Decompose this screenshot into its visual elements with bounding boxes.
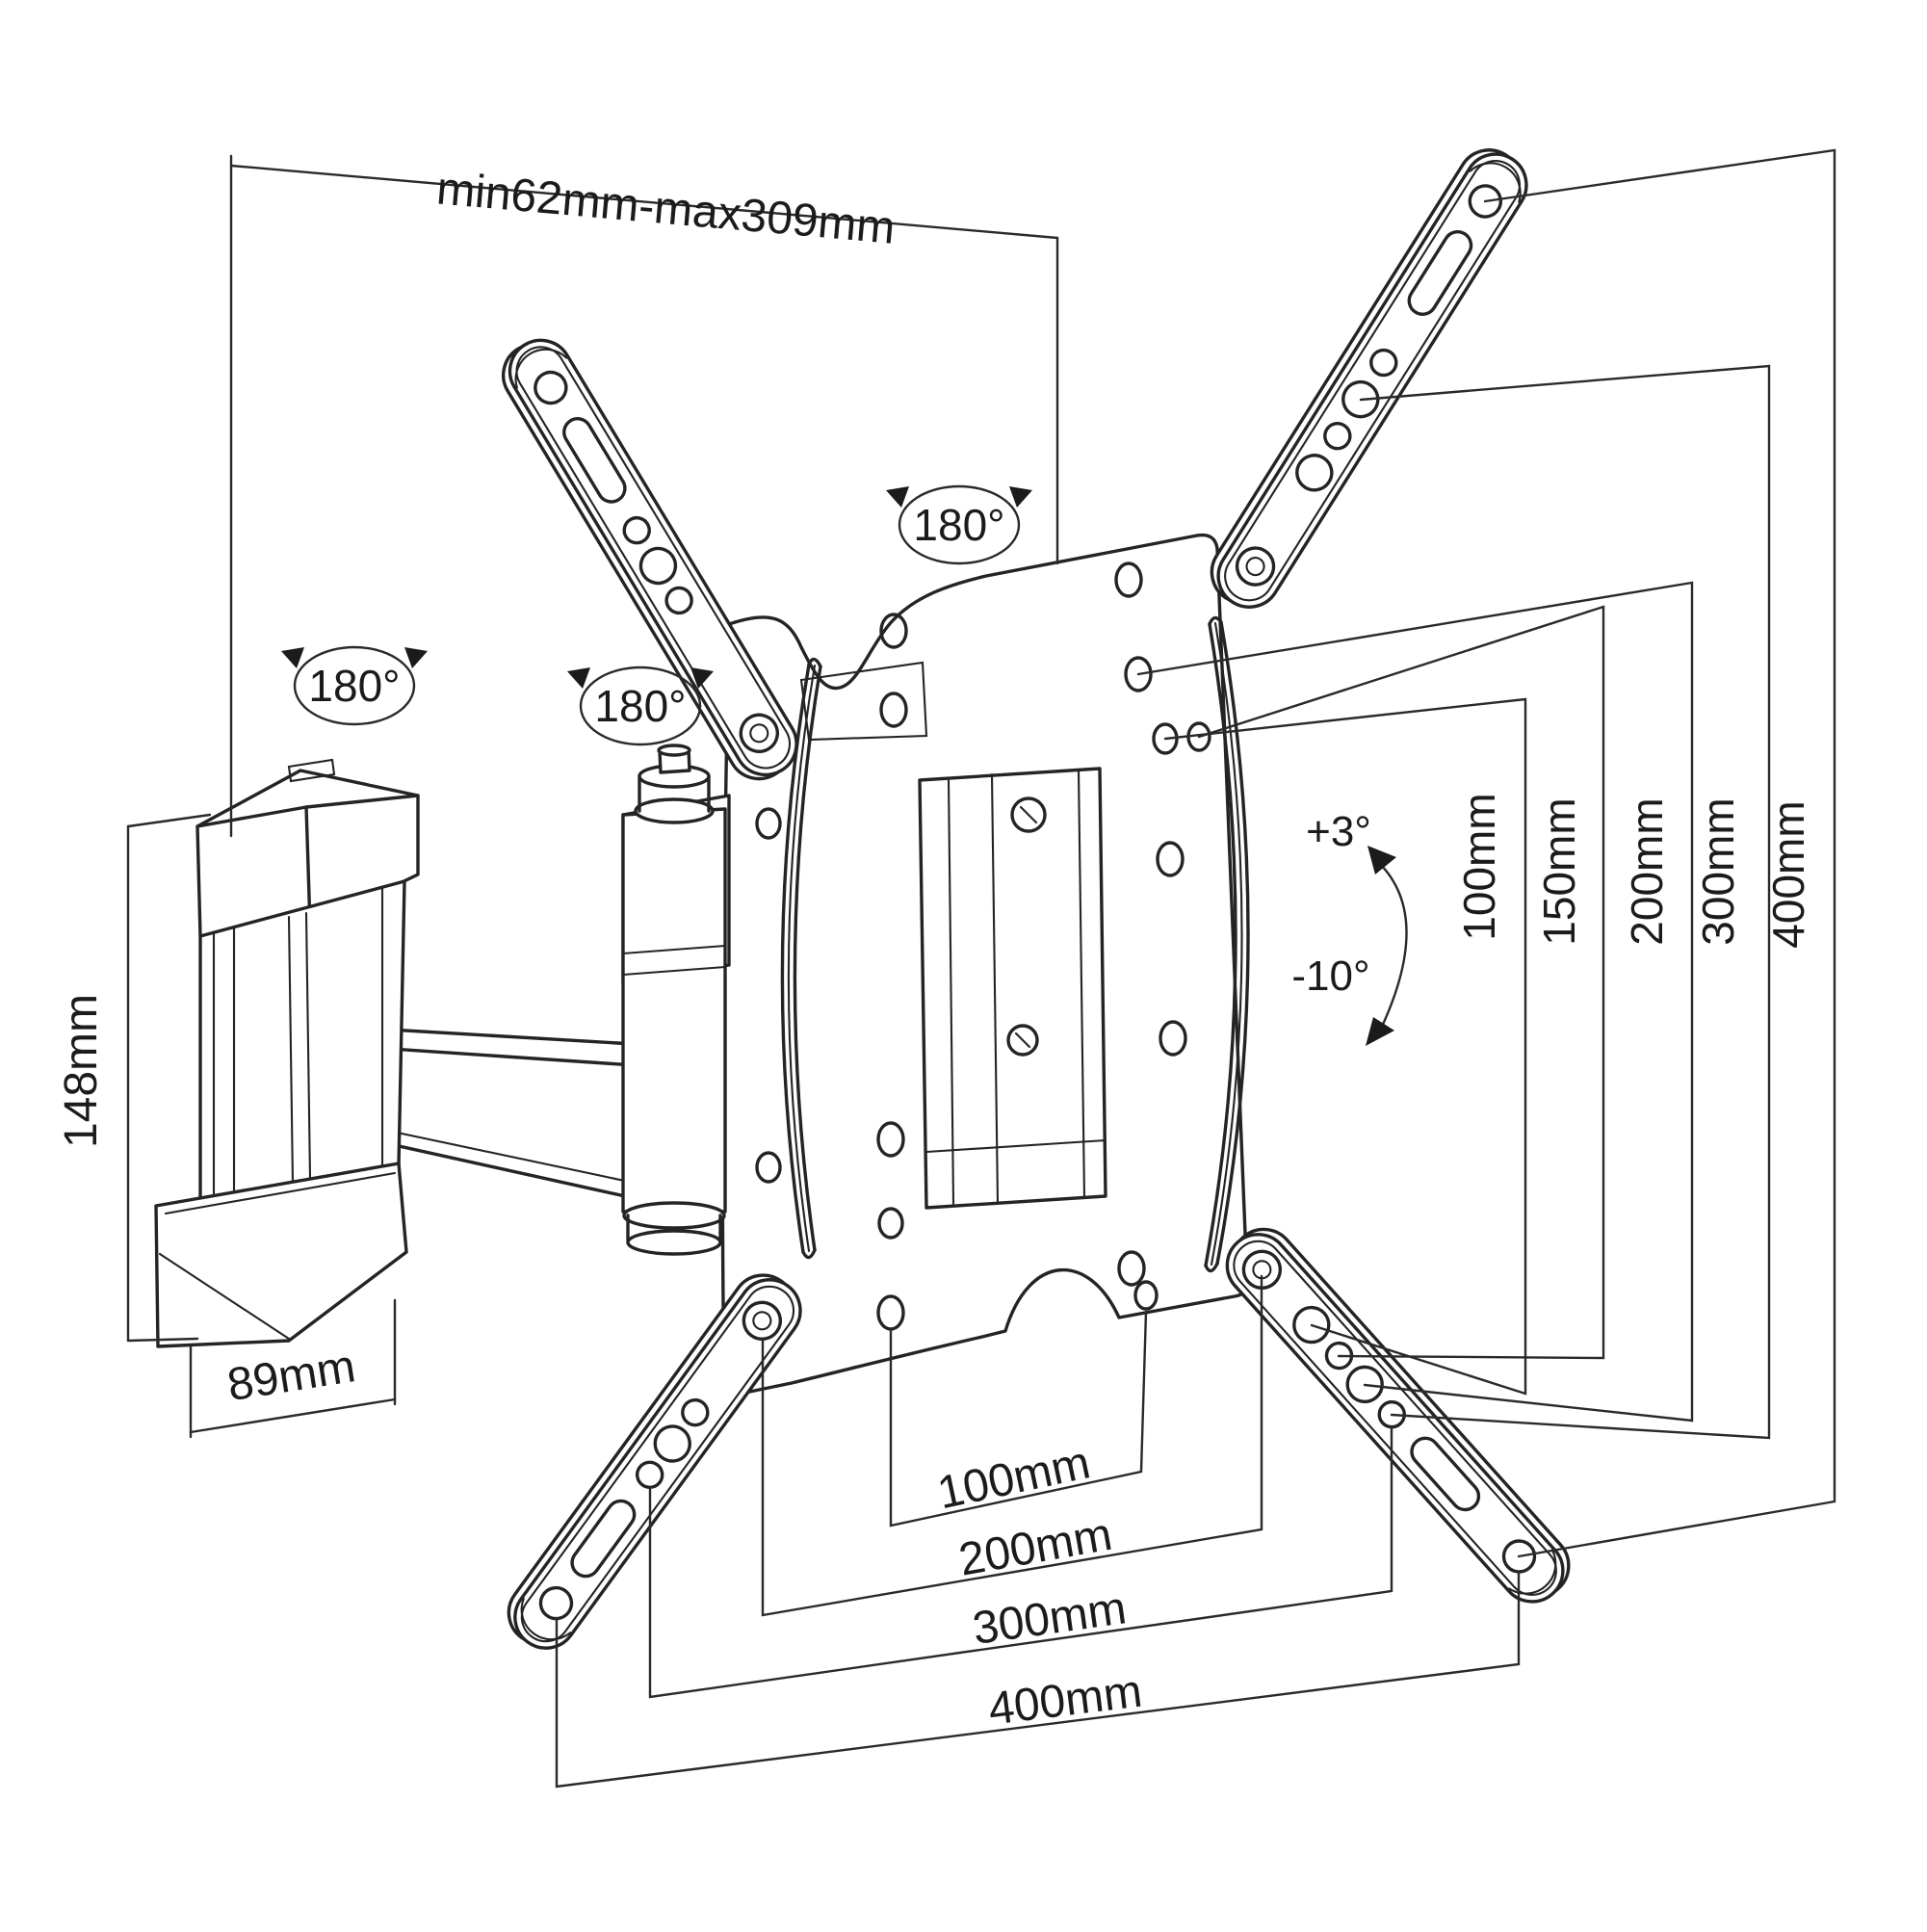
vesa-h-label-100: 100mm <box>933 1437 1095 1519</box>
vesa-v-label-300: 300mm <box>1693 797 1743 945</box>
wall-mount-diagram: 180° 180° 180° min62mm-max309mm 148mm 89… <box>0 0 1927 1927</box>
vesa-v-label-150: 150mm <box>1534 797 1584 945</box>
wall-bracket <box>156 760 418 1346</box>
vesa-v-label-200: 200mm <box>1622 797 1672 945</box>
hinge-joint <box>623 745 725 1254</box>
vesa-h-label-300: 300mm <box>970 1582 1130 1655</box>
vesa-h-label-400: 400mm <box>985 1666 1144 1736</box>
technical-drawing-page: 180° 180° 180° min62mm-max309mm 148mm 89… <box>0 0 1927 1927</box>
extension-arm-ne <box>1200 139 1538 619</box>
vesa-v-label-100: 100mm <box>1454 793 1504 940</box>
rotation-label-top: 180° <box>913 500 1004 550</box>
rotation-symbol-left: 180° <box>281 647 428 724</box>
tilt-down-label: -10° <box>1291 953 1369 1000</box>
rotation-label-left: 180° <box>308 661 400 711</box>
extension-arm-sw <box>497 1263 813 1659</box>
dim-top-range-label: min62mm-max309mm <box>434 163 897 253</box>
articulating-arm-assembly <box>156 745 729 1346</box>
dim-depth-label: 89mm <box>224 1341 359 1411</box>
tilt-arrow <box>1366 846 1407 1046</box>
rotation-label-mid: 180° <box>594 681 686 731</box>
tilt-up-label: +3° <box>1306 808 1371 855</box>
vesa-h-label-200: 200mm <box>955 1509 1116 1586</box>
dim-height-label: 148mm <box>56 994 107 1148</box>
vesa-plate <box>722 535 1248 1396</box>
vesa-v-label-400: 400mm <box>1763 800 1813 948</box>
rotation-symbol-top: 180° <box>886 486 1032 563</box>
